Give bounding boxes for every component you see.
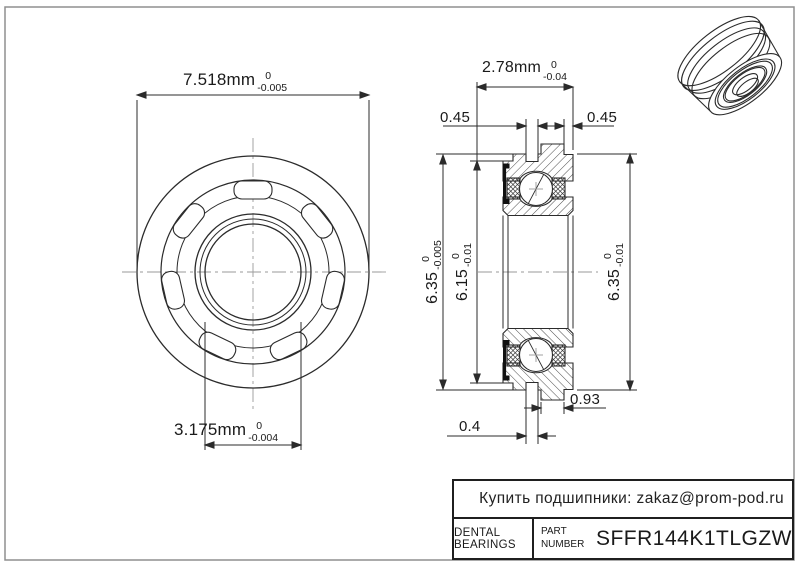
- contact-row: Купить подшипники: zakaz@prom-pod.ru: [454, 481, 792, 519]
- dim-od-inner-tolerance: 0-0.01: [451, 243, 474, 267]
- dim-bore-value: 3.175mm: [174, 421, 246, 438]
- brand-cell: DENTAL BEARINGS: [454, 519, 534, 558]
- dim-flange-width: 0.93: [570, 392, 600, 407]
- dim-bore-tolerance: 0-0.004: [248, 421, 278, 444]
- dim-width-value: 2.78mm: [482, 60, 541, 76]
- section-view: [478, 144, 598, 400]
- cage-section-left: [507, 178, 520, 199]
- dim-od-left-value: 6.35: [425, 272, 441, 304]
- dim-od-right-value: 6.35: [607, 269, 623, 301]
- part-number-value: SFFR144K1TLGZW: [596, 527, 792, 551]
- dim-groove-left: 0.45: [440, 110, 470, 125]
- dim-groove-right: 0.45: [587, 110, 617, 125]
- dim-od-right-tolerance: 0-0.01: [603, 243, 626, 267]
- part-row: DENTAL BEARINGS PART NUMBER SFFR144K1TLG…: [454, 519, 792, 558]
- dim-od-flange-tolerance: 0-0.005: [257, 71, 287, 94]
- brand-text: DENTAL BEARINGS: [454, 527, 532, 551]
- dim-land-width: 0.4: [459, 419, 480, 434]
- title-block: Купить подшипники: zakaz@prom-pod.ru DEN…: [452, 479, 794, 560]
- dim-od-left-lines: [436, 154, 514, 390]
- page-frame: [5, 7, 794, 560]
- drawing-page: 7.518mm 0-0.005 3.175mm 0-0.004 2.78mm 0…: [0, 0, 800, 565]
- dim-width-tolerance: 0-0.04: [543, 60, 567, 83]
- dim-land-width-lines: [447, 388, 556, 444]
- part-cell: PART NUMBER SFFR144K1TLGZW: [534, 519, 792, 558]
- render-3d: [668, 5, 796, 130]
- dim-width: 2.78mm 0-0.04: [482, 60, 567, 83]
- dim-od-left: 6.35 0-0.005: [422, 217, 444, 327]
- dim-width-lines: [477, 84, 573, 150]
- front-view: [122, 138, 390, 410]
- dim-od-flange-value: 7.518mm: [183, 71, 255, 88]
- dim-bore: 3.175mm 0-0.004: [174, 421, 278, 444]
- part-number-label: PART NUMBER: [534, 526, 596, 551]
- dim-od-inner-lines: [470, 82, 504, 383]
- contact-text: Купить подшипники: zakaz@prom-pod.ru: [479, 490, 784, 508]
- dim-od-inner: 6.15 0-0.01: [452, 217, 474, 327]
- dim-od-inner-value: 6.15: [455, 269, 471, 301]
- dim-od-right: 6.35 0-0.01: [604, 217, 626, 327]
- cage-section-right: [552, 178, 565, 199]
- dim-od-left-tolerance: 0-0.005: [421, 240, 444, 270]
- dim-od-flange: 7.518mm 0-0.005: [183, 71, 287, 94]
